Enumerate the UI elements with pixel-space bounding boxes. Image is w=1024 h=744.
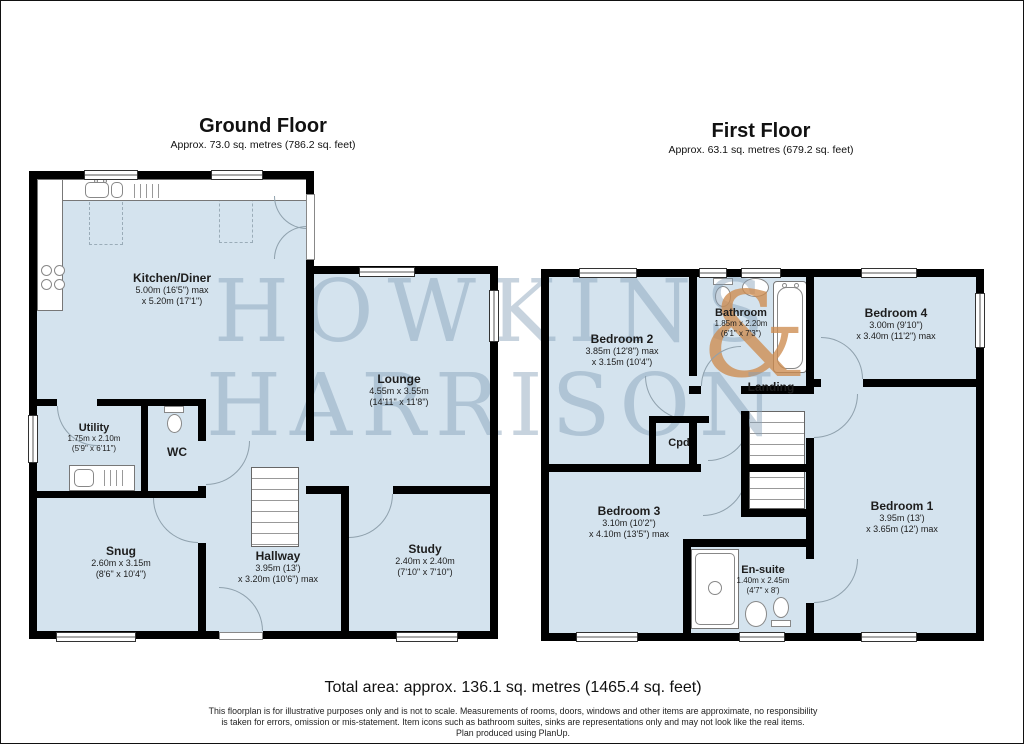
wall xyxy=(549,464,701,472)
kitchen-counter xyxy=(37,179,314,201)
sink-drainer-icon xyxy=(129,184,161,198)
disclaimer-line3: Plan produced using PlanUp. xyxy=(1,728,1024,739)
window xyxy=(576,632,638,642)
room-label-snug: Snug 2.60m x 3.15m (8'6" x 10'4") xyxy=(46,544,196,579)
disclaimer-line1: This floorplan is for illustrative purpo… xyxy=(1,706,1024,717)
wall xyxy=(306,171,314,196)
room-label-wc: WC xyxy=(102,445,252,459)
patio-door-opening xyxy=(306,194,315,260)
wall xyxy=(806,438,814,559)
hob-burner-icon xyxy=(54,279,65,290)
wall xyxy=(649,416,709,423)
hob-burner-icon xyxy=(41,265,52,276)
room-label-ensuite: En-suite 1.40m x 2.45m (4'7" x 8') xyxy=(688,564,838,595)
first-floor-title: First Floor xyxy=(611,120,911,143)
wall xyxy=(198,486,206,498)
window xyxy=(211,170,263,180)
kitchen-sink-icon xyxy=(85,182,109,198)
window xyxy=(579,268,637,278)
wall xyxy=(29,171,37,639)
window xyxy=(84,170,138,180)
front-door-opening xyxy=(219,632,263,640)
hob-burner-icon xyxy=(54,265,65,276)
window xyxy=(396,632,458,642)
room-label-landing: Landing xyxy=(696,380,846,394)
wall xyxy=(263,631,341,639)
kitchen-sink-bowl-icon xyxy=(111,182,123,198)
wall xyxy=(306,266,314,441)
room-label-bedroom3: Bedroom 3 3.10m (10'2") x 4.10m (13'5") … xyxy=(554,504,704,539)
wall xyxy=(198,399,206,441)
toilet-icon xyxy=(167,414,182,433)
room-label-bedroom4: Bedroom 4 3.00m (9'10") x 3.40m (11'2") … xyxy=(821,306,971,341)
total-area-text: Total area: approx. 136.1 sq. metres (14… xyxy=(1,679,1024,697)
wall xyxy=(306,486,349,494)
window xyxy=(861,632,917,642)
hob-burner-icon xyxy=(41,279,52,290)
wall xyxy=(683,539,806,547)
appliance-space-dashed xyxy=(89,197,123,245)
utility-drainer-icon xyxy=(99,470,127,486)
wall xyxy=(541,269,549,641)
window xyxy=(739,632,785,642)
wall xyxy=(806,603,814,641)
basin-icon xyxy=(745,601,767,627)
disclaimer-line2: is taken for errors, omission or mis-sta… xyxy=(1,717,1024,728)
toilet-icon xyxy=(773,597,789,618)
wall xyxy=(749,464,814,472)
toilet-cistern-icon xyxy=(771,620,791,627)
window xyxy=(741,268,781,278)
stairs-ground xyxy=(251,467,299,547)
room-label-lounge: Lounge 4.55m x 3.55m (14'11" x 11'8") xyxy=(324,372,474,407)
window xyxy=(489,290,499,342)
room-label-hallway: Hallway 3.95m (13') x 3.20m (10'6") max xyxy=(203,549,353,584)
wall xyxy=(97,399,205,406)
room-label-study: Study 2.40m x 2.40m (7'10" x 7'10") xyxy=(350,542,500,577)
wall xyxy=(29,491,198,498)
window xyxy=(56,632,136,642)
window xyxy=(359,267,415,277)
wall xyxy=(37,399,57,406)
wall xyxy=(393,486,498,494)
toilet-cistern-icon xyxy=(164,406,184,413)
room-label-bedroom1: Bedroom 1 3.95m (13') x 3.65m (12') max xyxy=(827,499,977,534)
floorplan-canvas: Ground Floor Approx. 73.0 sq. metres (78… xyxy=(0,0,1024,744)
wall xyxy=(741,411,749,509)
window xyxy=(699,268,727,278)
wall xyxy=(29,171,314,179)
first-floor-subtitle: Approx. 63.1 sq. metres (679.2 sq. feet) xyxy=(611,143,911,157)
ground-floor-header: Ground Floor Approx. 73.0 sq. metres (78… xyxy=(113,115,413,152)
wall xyxy=(741,509,814,517)
ground-floor-subtitle: Approx. 73.0 sq. metres (786.2 sq. feet) xyxy=(113,138,413,152)
room-label-bathroom: Bathroom 1.85m x 2.20m (6'1" x 7'3") xyxy=(666,307,816,338)
wall xyxy=(863,379,984,387)
room-label-kitchen-diner: Kitchen/Diner 5.00m (16'5") max x 5.20m … xyxy=(97,271,247,306)
first-floor-header: First Floor Approx. 63.1 sq. metres (679… xyxy=(611,120,911,157)
window xyxy=(975,293,985,348)
room-label-cupboard: Cpd xyxy=(604,437,754,449)
wall xyxy=(206,631,219,639)
kitchen-counter-left xyxy=(37,179,63,311)
utility-sink-icon xyxy=(74,469,94,487)
window xyxy=(861,268,917,278)
ground-floor-title: Ground Floor xyxy=(113,115,413,138)
